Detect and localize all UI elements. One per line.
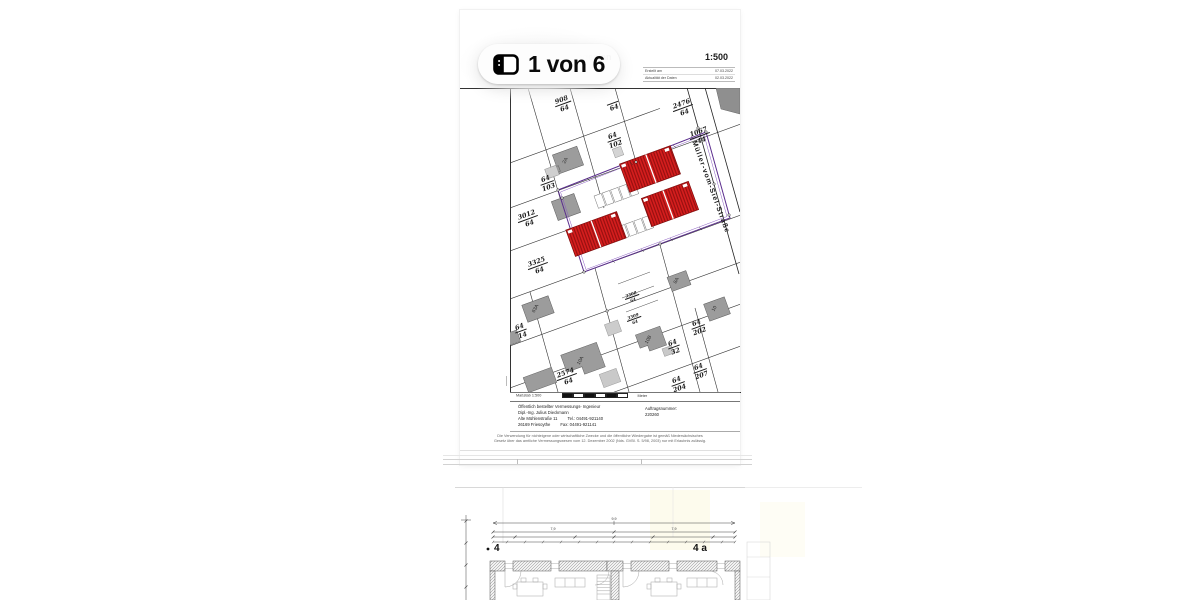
order-number-block: Auftragsnummer: 220260 (645, 406, 677, 419)
surveyor-address2: 26169 Friesoythe (518, 422, 550, 428)
page-count-label: 1 von 6 (528, 51, 605, 78)
surveyor-block: Öffentlich bestellter Vermessungs- Ingen… (518, 404, 603, 428)
page-bottom-line (460, 450, 740, 451)
footer-divider (510, 431, 740, 432)
margin-mark (506, 376, 507, 386)
meta-label: Aktualität der Daten (645, 76, 677, 80)
pages-icon (493, 54, 519, 75)
surveyor-fax: Fax: 04491-921141 (560, 422, 596, 428)
page-count-badge[interactable]: 1 von 6 (478, 44, 620, 84)
dimension-right: 7,9 (672, 527, 677, 531)
footer-divider (510, 401, 740, 402)
axis-label-4a: 4 a (693, 543, 707, 554)
header-meta-table: Erstellt am 07.03.2022 Aktualität der Da… (643, 67, 735, 82)
scale-bar-unit: Meter (637, 394, 647, 398)
scale-bar-value: 1:500 (532, 394, 542, 398)
dimension-left: 7,9 (551, 527, 556, 531)
page-2-floor-plan[interactable]: 9,9 7,9 7,9 4 4 a (455, 487, 862, 600)
order-number-value: 220260 (645, 412, 677, 418)
scale-bar: Maßstab 1:500 Meter (516, 393, 736, 400)
meta-row: Erstellt am 07.03.2022 (643, 68, 735, 75)
meta-value: 07.03.2022 (715, 69, 733, 73)
axis-label-4: 4 (494, 543, 500, 554)
legal-disclaimer-line2: Gesetz über das amtliche Vermessungswese… (470, 439, 730, 444)
sheet-edge-strip (443, 455, 752, 466)
meta-row: Aktualität der Daten 02.03.2022 (643, 75, 735, 81)
meta-value: 02.03.2022 (715, 76, 733, 80)
meta-label: Erstellt am (645, 69, 662, 73)
map-scale: 1:500 (705, 52, 728, 62)
legal-disclaimer: Die Verwendung für nichteigene oder wirt… (470, 434, 730, 444)
quicklook-document-viewer[interactable]: Lageplan Gemk. I. Flurst. 220766 1:500 E… (0, 0, 1200, 600)
dimension-total: 9,9 (612, 517, 617, 521)
floor-plan-graphic (455, 487, 862, 600)
scale-bar-label: Maßstab (516, 394, 531, 398)
